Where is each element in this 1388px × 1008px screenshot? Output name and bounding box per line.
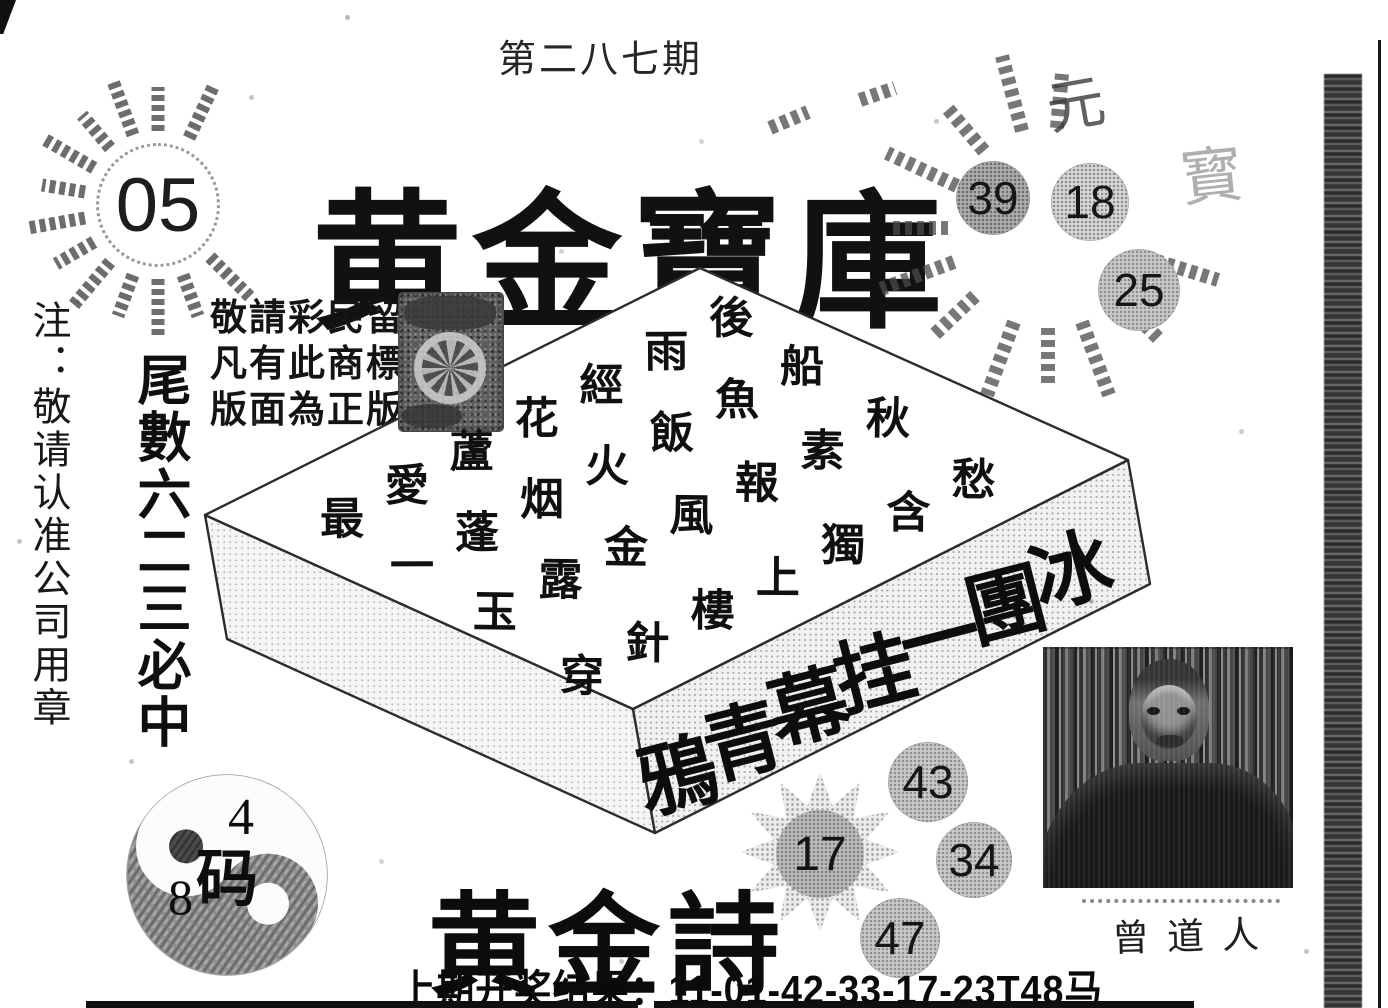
calligraphy-char: 露 (537, 557, 584, 604)
calligraphy-char: 後 (708, 296, 754, 342)
faint-char-bao: 寳 (1175, 123, 1246, 219)
stamp-wheel-motif (414, 332, 486, 404)
stamp-base-motif (402, 404, 462, 428)
circle-number-25: 25 (1098, 249, 1180, 331)
calligraphy-char: 風 (668, 493, 715, 540)
calligraphy-char: 雨 (643, 329, 689, 375)
calligraphy-char: 金 (603, 525, 650, 572)
taiji-char-ma: 码 (196, 828, 258, 918)
bottom-border-strip-left (86, 1001, 638, 1008)
circle-number-34: 34 (936, 822, 1012, 898)
taiji-number-left: 8 (168, 868, 193, 926)
circle-number-43: 43 (888, 742, 968, 822)
calligraphy-char: 蓬 (454, 511, 500, 557)
stamp-dragon-motif (404, 296, 496, 330)
calligraphy-char: 報 (734, 461, 781, 508)
bottom-border-strip-right (654, 1001, 1194, 1008)
calligraphy-char: 飯 (649, 411, 695, 457)
calligraphy-char: 上 (755, 556, 801, 602)
lottery-tip-sheet: 第二八七期 黄金寶庫 05 39 18 25 元 寳 注：敬请认准公司用章 尾數… (0, 0, 1388, 1008)
calligraphy-char: 魚 (714, 378, 760, 424)
portrait-caption: 曾道人 (1111, 904, 1277, 962)
calligraphy-char: 最 (319, 497, 365, 543)
calligraphy-char: 含 (885, 490, 931, 536)
calligraphy-char: 素 (799, 429, 846, 476)
calligraphy-char: 愁 (950, 458, 996, 504)
calligraphy-char: 樓 (689, 588, 735, 634)
calligraphy-char: 烟 (519, 477, 565, 523)
calligraphy-char: 秋 (865, 396, 912, 443)
calligraphy-char: 穿 (559, 654, 605, 700)
calligraphy-char: 獨 (820, 523, 866, 569)
right-scan-artifact-bar (1324, 74, 1362, 1008)
calligraphy-char: 經 (578, 363, 624, 409)
calligraphy-char: 花 (513, 396, 559, 442)
calligraphy-char: 針 (624, 621, 670, 667)
circle-number-39: 39 (956, 161, 1030, 235)
calligraphy-char: 愛 (384, 463, 430, 509)
portrait-grain-overlay (1043, 647, 1293, 888)
right-edge-line (1378, 40, 1381, 1008)
star-number-17: 17 (776, 810, 864, 898)
circle-number-18: 18 (1051, 163, 1129, 241)
calligraphy-char: 一 (389, 544, 435, 590)
calligraphy-char: 船 (779, 344, 825, 390)
calligraphy-char: 火 (584, 444, 630, 490)
caption-dotted-line (1082, 899, 1280, 903)
badge-number: 05 (116, 162, 201, 249)
portrait-photo (1043, 647, 1293, 888)
trademark-stamp-icon (398, 292, 504, 432)
badge-number-circle: 05 (96, 143, 220, 267)
calligraphy-char: 蘆 (449, 430, 495, 476)
calligraphy-char: 玉 (472, 590, 519, 637)
